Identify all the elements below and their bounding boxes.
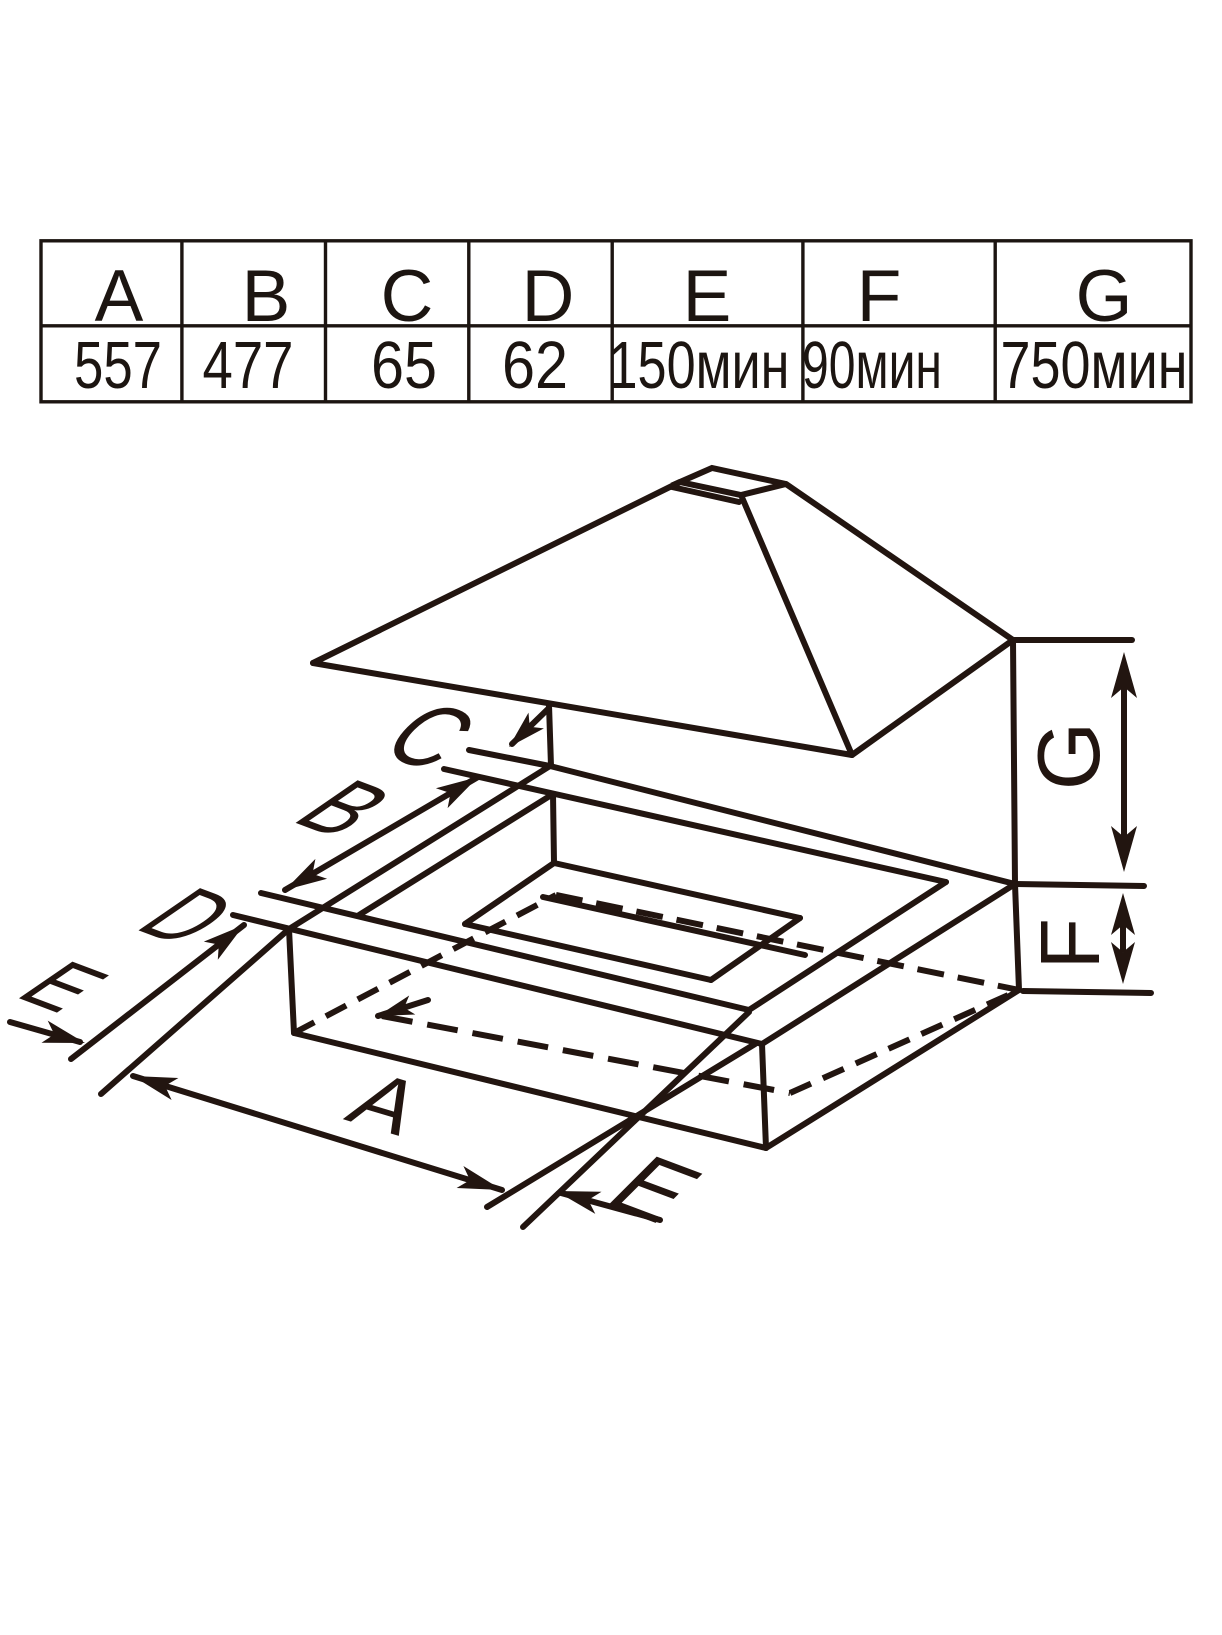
svg-text:B: B xyxy=(242,256,291,337)
svg-text:150мин: 150мин xyxy=(609,328,790,403)
svg-text:D: D xyxy=(522,256,575,337)
svg-text:F: F xyxy=(1023,918,1117,969)
svg-text:750мин: 750мин xyxy=(1001,328,1188,403)
svg-text:G: G xyxy=(1076,256,1133,337)
svg-text:557: 557 xyxy=(74,328,162,403)
svg-text:E: E xyxy=(0,949,129,1026)
svg-text:62: 62 xyxy=(502,328,568,403)
svg-text:F: F xyxy=(857,256,902,337)
svg-text:G: G xyxy=(1019,722,1118,790)
svg-text:A: A xyxy=(95,256,144,337)
svg-text:C: C xyxy=(381,256,434,337)
svg-text:B: B xyxy=(271,765,419,852)
svg-text:90мин: 90мин xyxy=(802,328,942,403)
svg-text:E: E xyxy=(586,1140,722,1240)
svg-text:A: A xyxy=(333,1057,439,1151)
svg-text:E: E xyxy=(683,256,732,337)
svg-text:65: 65 xyxy=(371,328,437,403)
svg-text:477: 477 xyxy=(203,328,294,403)
